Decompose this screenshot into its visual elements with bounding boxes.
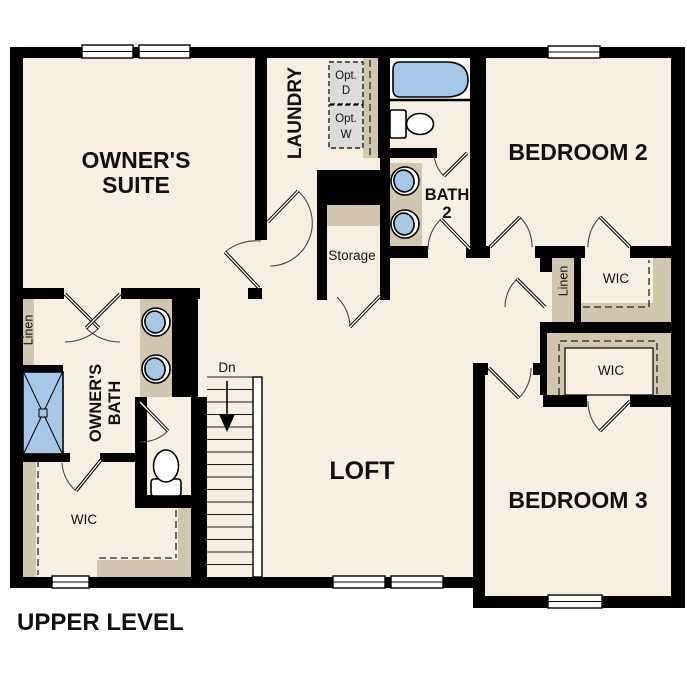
window	[333, 576, 385, 588]
window	[82, 45, 133, 58]
owners-bath-label-line2: BATH	[106, 381, 124, 426]
bath2-label-line2: 2	[442, 204, 451, 222]
wic-bedroom2-label: WIC	[603, 271, 629, 286]
owners-suite-label-line1: OWNER'S	[82, 147, 191, 173]
stair-rail	[253, 377, 262, 577]
page-title: UPPER LEVEL	[17, 609, 184, 636]
window	[548, 595, 602, 608]
window	[548, 46, 600, 58]
linen-owners-label: Linen	[22, 315, 36, 346]
wic2-shelf-right	[653, 258, 671, 322]
floor-plan-canvas: OWNER'S SUITE LAUNDRY Opt. D Opt. W BEDR…	[0, 0, 687, 687]
window	[139, 45, 190, 58]
wic3-shelf-left	[547, 348, 565, 395]
wic-bedroom3-label: WIC	[598, 363, 624, 378]
wic-owners-label: WIC	[71, 512, 97, 527]
toilet-owners-icon	[151, 450, 181, 496]
storage-label: Storage	[328, 248, 375, 263]
bedroom2-label: BEDROOM 2	[508, 139, 647, 165]
wic3-shelf-right	[653, 348, 671, 395]
opt-washer-label-line2: W	[341, 129, 352, 141]
owners-wic-shelf-left	[21, 456, 36, 577]
storage-shelf	[327, 205, 380, 226]
stairs-dn-label: Dn	[218, 360, 235, 375]
window	[52, 576, 89, 588]
optional-dryer-icon	[329, 62, 363, 104]
laundry-label: LAUNDRY	[285, 67, 306, 160]
wic2-shelf-bottom	[581, 303, 653, 322]
shower-icon	[23, 372, 63, 454]
owners-bath-label-line1: OWNER'S	[87, 364, 105, 442]
opt-washer-label-line1: Opt.	[335, 113, 357, 125]
opt-dryer-label-line1: Opt.	[335, 70, 357, 82]
bedroom3-label: BEDROOM 3	[508, 487, 647, 513]
optional-washer-icon	[329, 105, 363, 148]
linen-hall-label: Linen	[557, 266, 571, 297]
loft-label: LOFT	[329, 457, 394, 485]
bath2-label-line1: BATH	[425, 186, 470, 204]
owners-suite-label-line2: SUITE	[102, 172, 170, 198]
window	[391, 576, 443, 588]
owners-wic-shelf-bottom	[97, 560, 197, 578]
opt-dryer-label-line2: D	[342, 85, 350, 97]
floor-plan-page: OWNER'S SUITE LAUNDRY Opt. D Opt. W BEDR…	[0, 0, 687, 687]
bathtub-icon	[393, 62, 468, 97]
